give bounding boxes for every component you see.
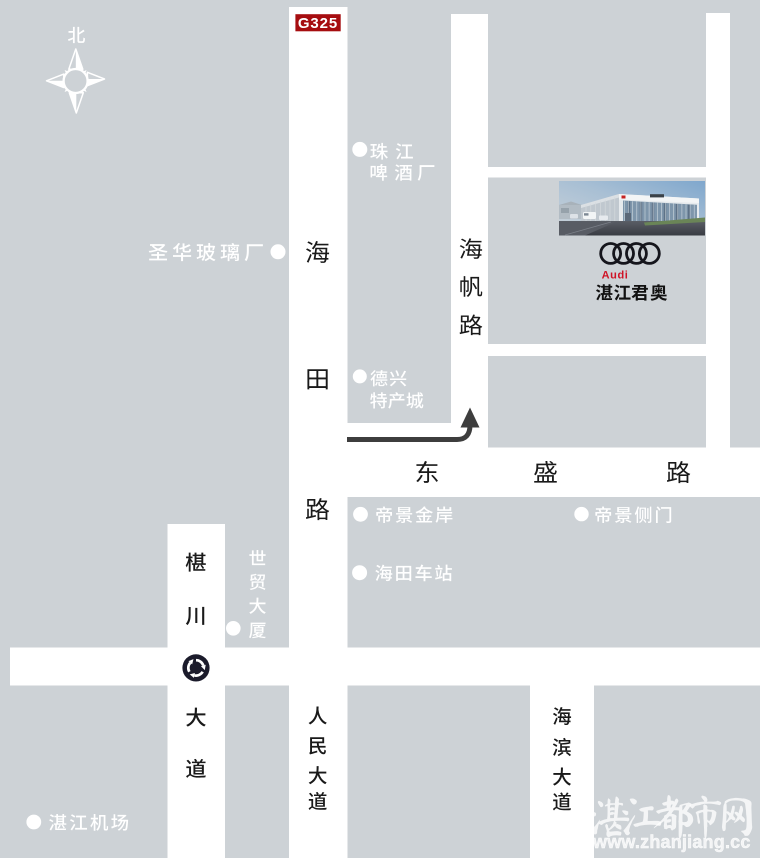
svg-text:G325: G325 xyxy=(298,15,338,32)
svg-text:Audi: Audi xyxy=(602,269,629,281)
svg-text:www.zhanjiang.cc: www.zhanjiang.cc xyxy=(592,832,751,852)
